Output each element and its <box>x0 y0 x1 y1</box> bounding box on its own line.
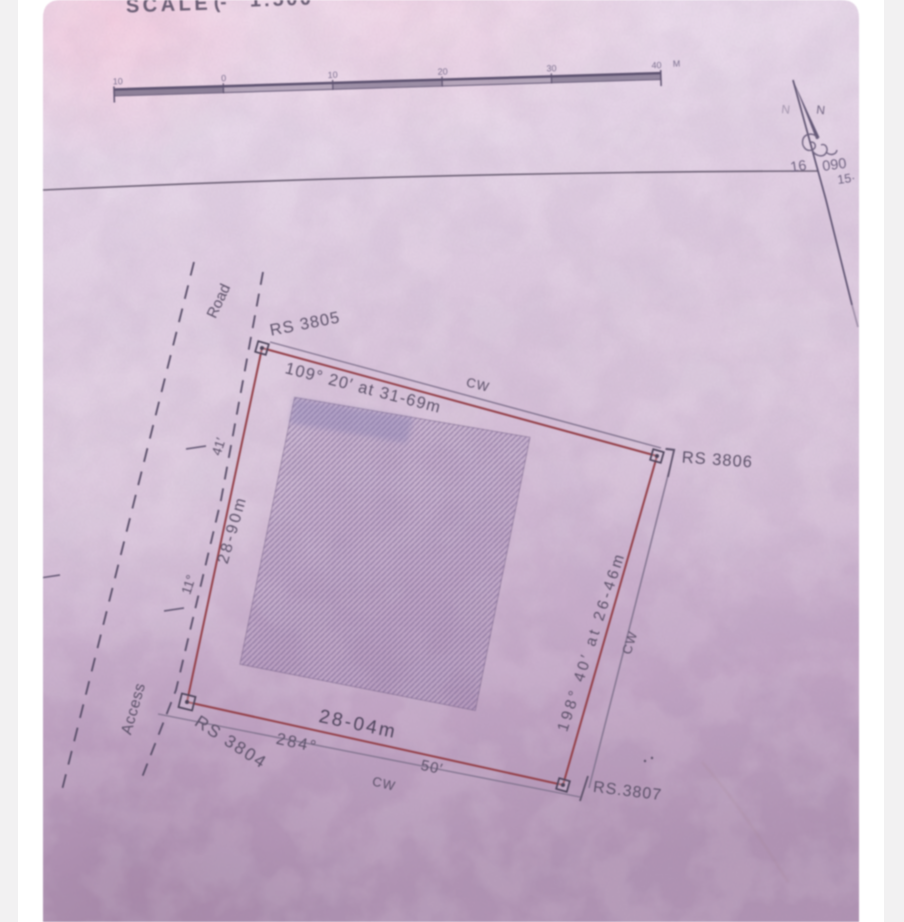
svg-text:20: 20 <box>437 66 447 76</box>
svg-text:SCALE: SCALE <box>125 0 211 17</box>
svg-text:M: M <box>673 58 681 68</box>
svg-text:15·: 15· <box>836 171 856 187</box>
svg-text:0: 0 <box>221 73 226 83</box>
svg-text:10: 10 <box>113 76 123 86</box>
svg-text:N: N <box>816 103 826 118</box>
svg-text:16: 16 <box>789 158 807 176</box>
svg-text:30: 30 <box>546 63 556 73</box>
svg-text:N: N <box>781 102 791 117</box>
svg-text:(-: (- <box>213 0 226 13</box>
svg-text:10: 10 <box>328 70 338 80</box>
svg-text:40: 40 <box>651 60 661 70</box>
